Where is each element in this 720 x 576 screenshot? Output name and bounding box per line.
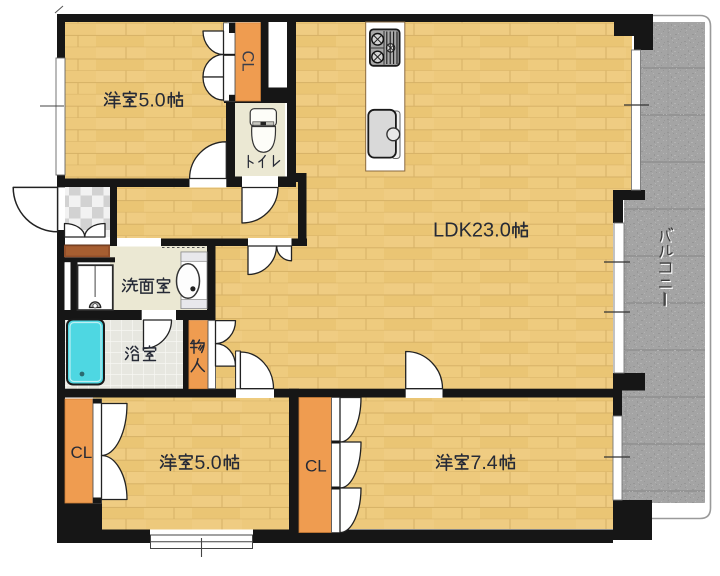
svg-text:CL: CL	[238, 50, 256, 71]
svg-text:5.0: 5.0	[139, 90, 166, 112]
svg-text:7.4: 7.4	[471, 452, 498, 474]
svg-text:5.0: 5.0	[195, 452, 222, 474]
svg-text:CL: CL	[305, 457, 327, 476]
svg-text:CL: CL	[71, 443, 93, 462]
svg-text:LDK23.0: LDK23.0	[433, 220, 511, 242]
